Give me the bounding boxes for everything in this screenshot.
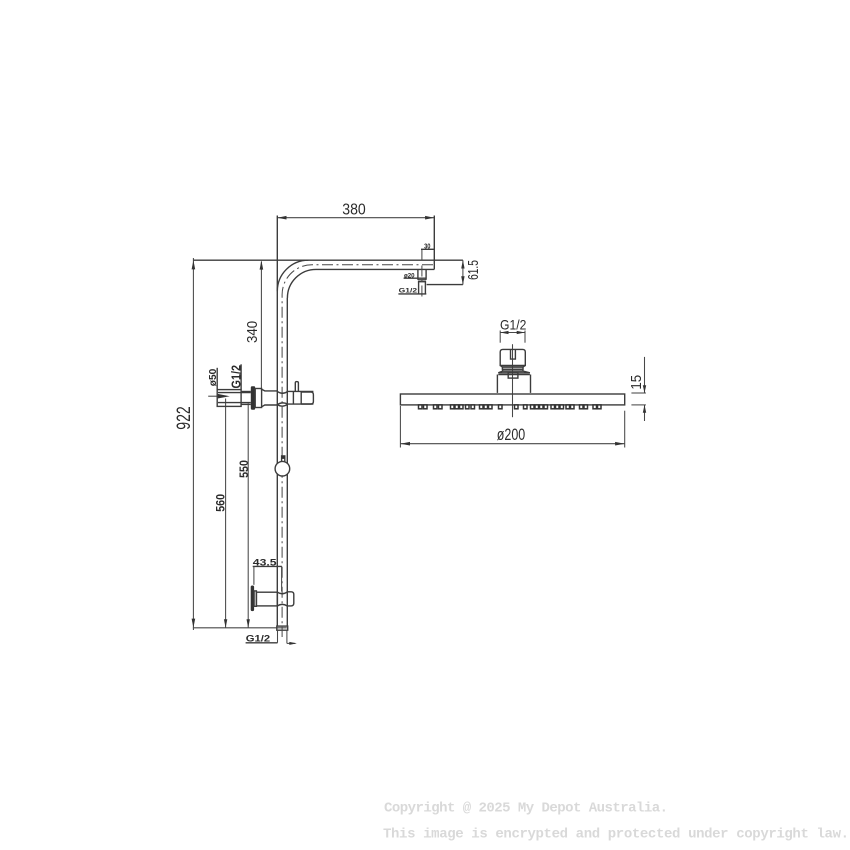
svg-text:This image is encrypted and pr: This image is encrypted and protected un… bbox=[383, 827, 849, 843]
svg-text:G1/2: G1/2 bbox=[399, 288, 418, 295]
svg-text:Copyright @ 2025 My Depot Aust: Copyright @ 2025 My Depot Australia. bbox=[384, 801, 668, 817]
svg-text:G1/2: G1/2 bbox=[229, 365, 244, 389]
svg-text:43.5: 43.5 bbox=[253, 557, 277, 567]
svg-text:922: 922 bbox=[174, 406, 195, 430]
svg-text:15: 15 bbox=[628, 375, 645, 390]
svg-text:61.5: 61.5 bbox=[465, 260, 482, 280]
svg-text:ø20: ø20 bbox=[404, 273, 415, 280]
svg-text:G1/2: G1/2 bbox=[246, 634, 270, 645]
svg-text:380: 380 bbox=[342, 201, 366, 218]
svg-text:ø200: ø200 bbox=[497, 426, 525, 444]
svg-text:560: 560 bbox=[214, 494, 228, 512]
svg-text:G1/2: G1/2 bbox=[500, 318, 526, 333]
svg-text:ø50: ø50 bbox=[208, 368, 219, 386]
svg-text:550: 550 bbox=[237, 460, 251, 478]
svg-text:340: 340 bbox=[244, 321, 261, 343]
svg-text:30: 30 bbox=[424, 243, 431, 250]
